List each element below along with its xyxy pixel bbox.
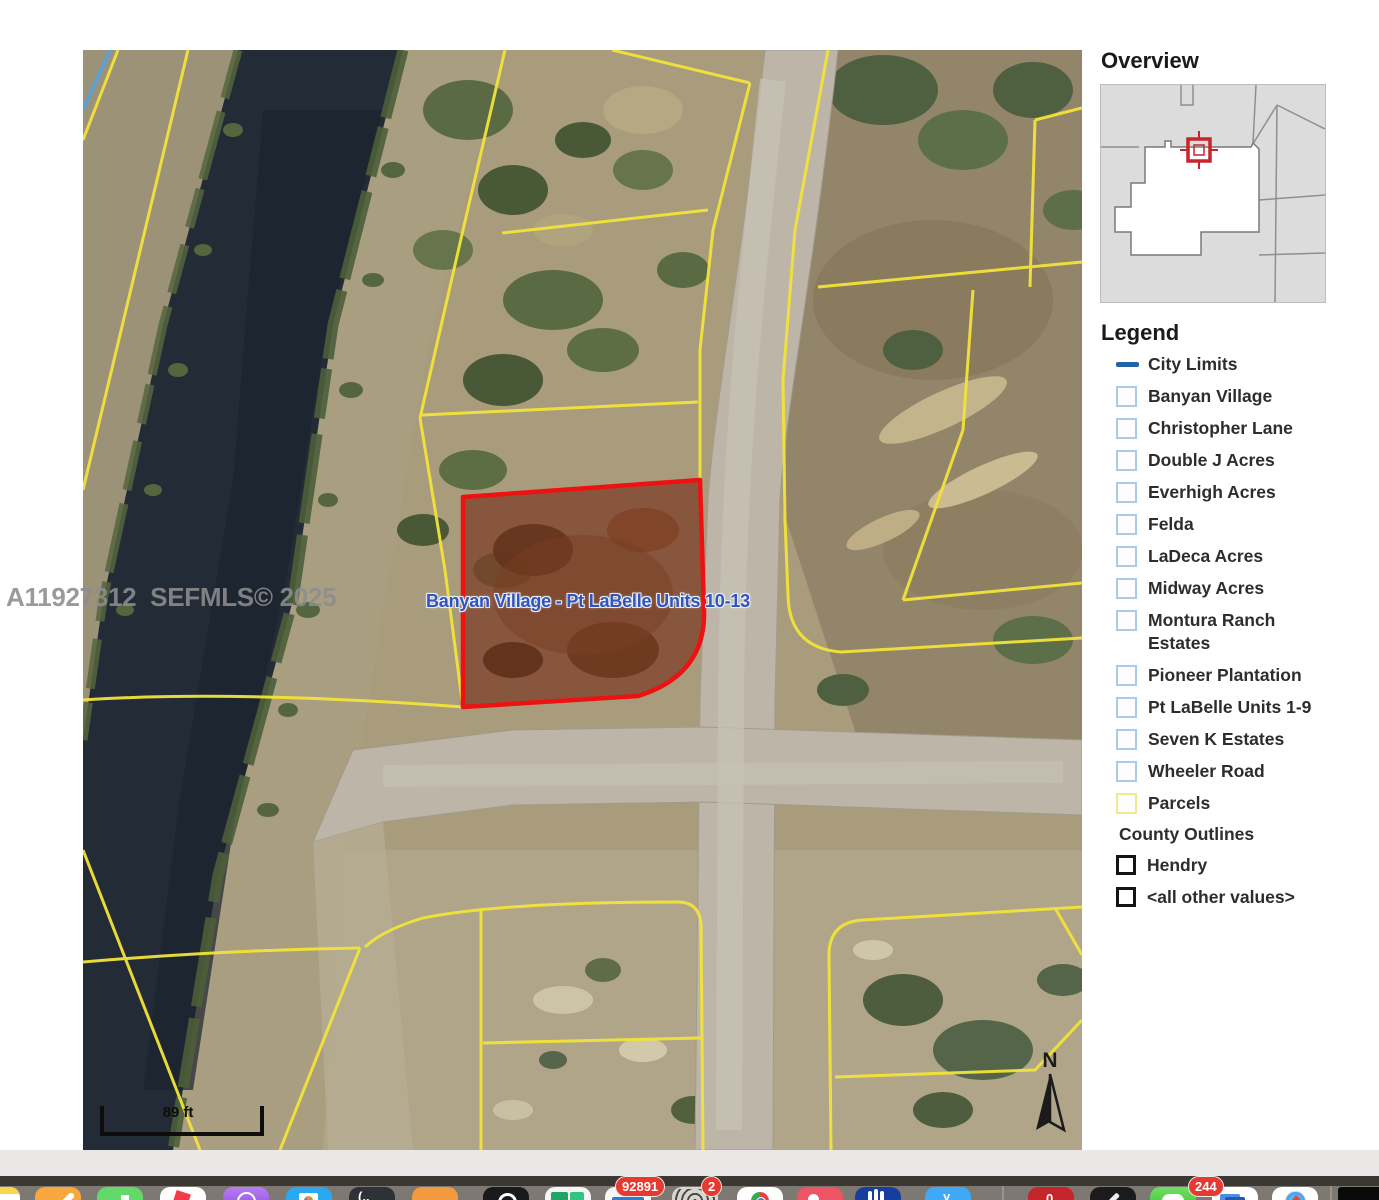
north-arrow-glyph: [1033, 1072, 1067, 1134]
subdivision-swatch: [1116, 610, 1137, 631]
legend-item-ladeca-acres: LaDeca Acres: [1116, 545, 1362, 568]
terminal-icon[interactable]: (..: [349, 1187, 395, 1200]
dock-divider: [1330, 1186, 1332, 1200]
dock-shadow: [0, 1176, 1379, 1186]
map-scale-bar: 89 ft: [100, 1106, 256, 1136]
legend-item-hendry: Hendry: [1116, 854, 1362, 877]
legend-item-felda: Felda: [1116, 513, 1362, 536]
legend-item-banyan-village: Banyan Village: [1116, 385, 1362, 408]
legend-item-parcels: Parcels: [1116, 792, 1362, 815]
subdivision-swatch: [1116, 697, 1137, 718]
map-side-panel: Overview Legend City Limits Banyan Villa…: [1100, 48, 1362, 918]
legend-item-pioneer-plantation: Pioneer Plantation: [1116, 664, 1362, 687]
subdivision-swatch: [1116, 578, 1137, 599]
subdivision-swatch: [1116, 482, 1137, 503]
subdivision-swatch: [1116, 761, 1137, 782]
overview-inset-map[interactable]: [1100, 84, 1326, 303]
dock-divider: [1002, 1186, 1004, 1200]
orange-app-icon[interactable]: [412, 1187, 458, 1200]
legend-item-midway-acres: Midway Acres: [1116, 577, 1362, 600]
legend-item-wheeler-road: Wheeler Road: [1116, 760, 1362, 783]
north-label: N: [1028, 1050, 1072, 1072]
podcasts-icon[interactable]: [223, 1187, 269, 1200]
legend-item-montura-ranch-estates: Montura Ranch Estates: [1116, 609, 1362, 655]
numbers-icon[interactable]: [97, 1187, 143, 1200]
selected-parcel-label: Banyan Village - Pt LaBelle Units 10-13: [413, 591, 763, 612]
pen-app-icon[interactable]: [1090, 1187, 1136, 1200]
red-app-icon[interactable]: 0: [1028, 1187, 1074, 1200]
county-outline-swatch: [1116, 855, 1136, 875]
parcels-swatch: [1116, 793, 1137, 814]
legend-item-seven-k-estates: Seven K Estates: [1116, 728, 1362, 751]
subdivision-swatch: [1116, 729, 1137, 750]
window-bottom-strip: [0, 1150, 1379, 1176]
subdivision-swatch: [1116, 386, 1137, 407]
north-arrow: N: [1028, 1050, 1072, 1139]
legend-subheading-county-outlines: County Outlines: [1119, 824, 1362, 845]
desktop-screen: { "map": { "watermark": "A11927312 SEFML…: [0, 0, 1379, 1200]
legend-item-all-other-values: <all other values>: [1116, 886, 1362, 909]
safari-icon[interactable]: [1272, 1187, 1318, 1200]
music-icon[interactable]: [797, 1187, 843, 1200]
legend-item-christopher-lane: Christopher Lane: [1116, 417, 1362, 440]
legend-item-double-j-acres: Double J Acres: [1116, 449, 1362, 472]
legend-item-everhigh-acres: Everhigh Acres: [1116, 481, 1362, 504]
subdivision-swatch: [1116, 665, 1137, 686]
legend-item-pt-labelle-units-1-9: Pt LaBelle Units 1-9: [1116, 696, 1362, 719]
camera-app-icon[interactable]: [483, 1187, 529, 1200]
news-icon[interactable]: [160, 1187, 206, 1200]
notification-badge: 92891: [615, 1176, 665, 1197]
notification-badge: 244: [1188, 1176, 1224, 1197]
overview-title: Overview: [1101, 48, 1362, 74]
pages-icon[interactable]: [35, 1187, 81, 1200]
mls-watermark: A11927312 SEFMLS© 2025: [6, 582, 336, 613]
legend-item-city-limits: City Limits: [1116, 353, 1362, 376]
notes-icon[interactable]: [0, 1187, 20, 1200]
chrome-icon[interactable]: [737, 1187, 783, 1200]
subdivision-swatch: [1116, 418, 1137, 439]
subdivision-swatch: [1116, 450, 1137, 471]
y-app-icon[interactable]: y: [925, 1187, 971, 1200]
photo-booth-icon[interactable]: [286, 1187, 332, 1200]
legend-title: Legend: [1101, 320, 1362, 346]
subdivision-swatch: [1116, 514, 1137, 535]
city-limits-line-swatch: [1116, 354, 1137, 375]
minimized-window-thumbnail[interactable]: [1338, 1187, 1379, 1200]
excel-icon[interactable]: [545, 1187, 591, 1200]
subdivision-swatch: [1116, 546, 1137, 567]
scale-bar-text: 89 ft: [100, 1104, 256, 1121]
hand-app-icon[interactable]: [855, 1187, 901, 1200]
county-outline-swatch: [1116, 887, 1136, 907]
